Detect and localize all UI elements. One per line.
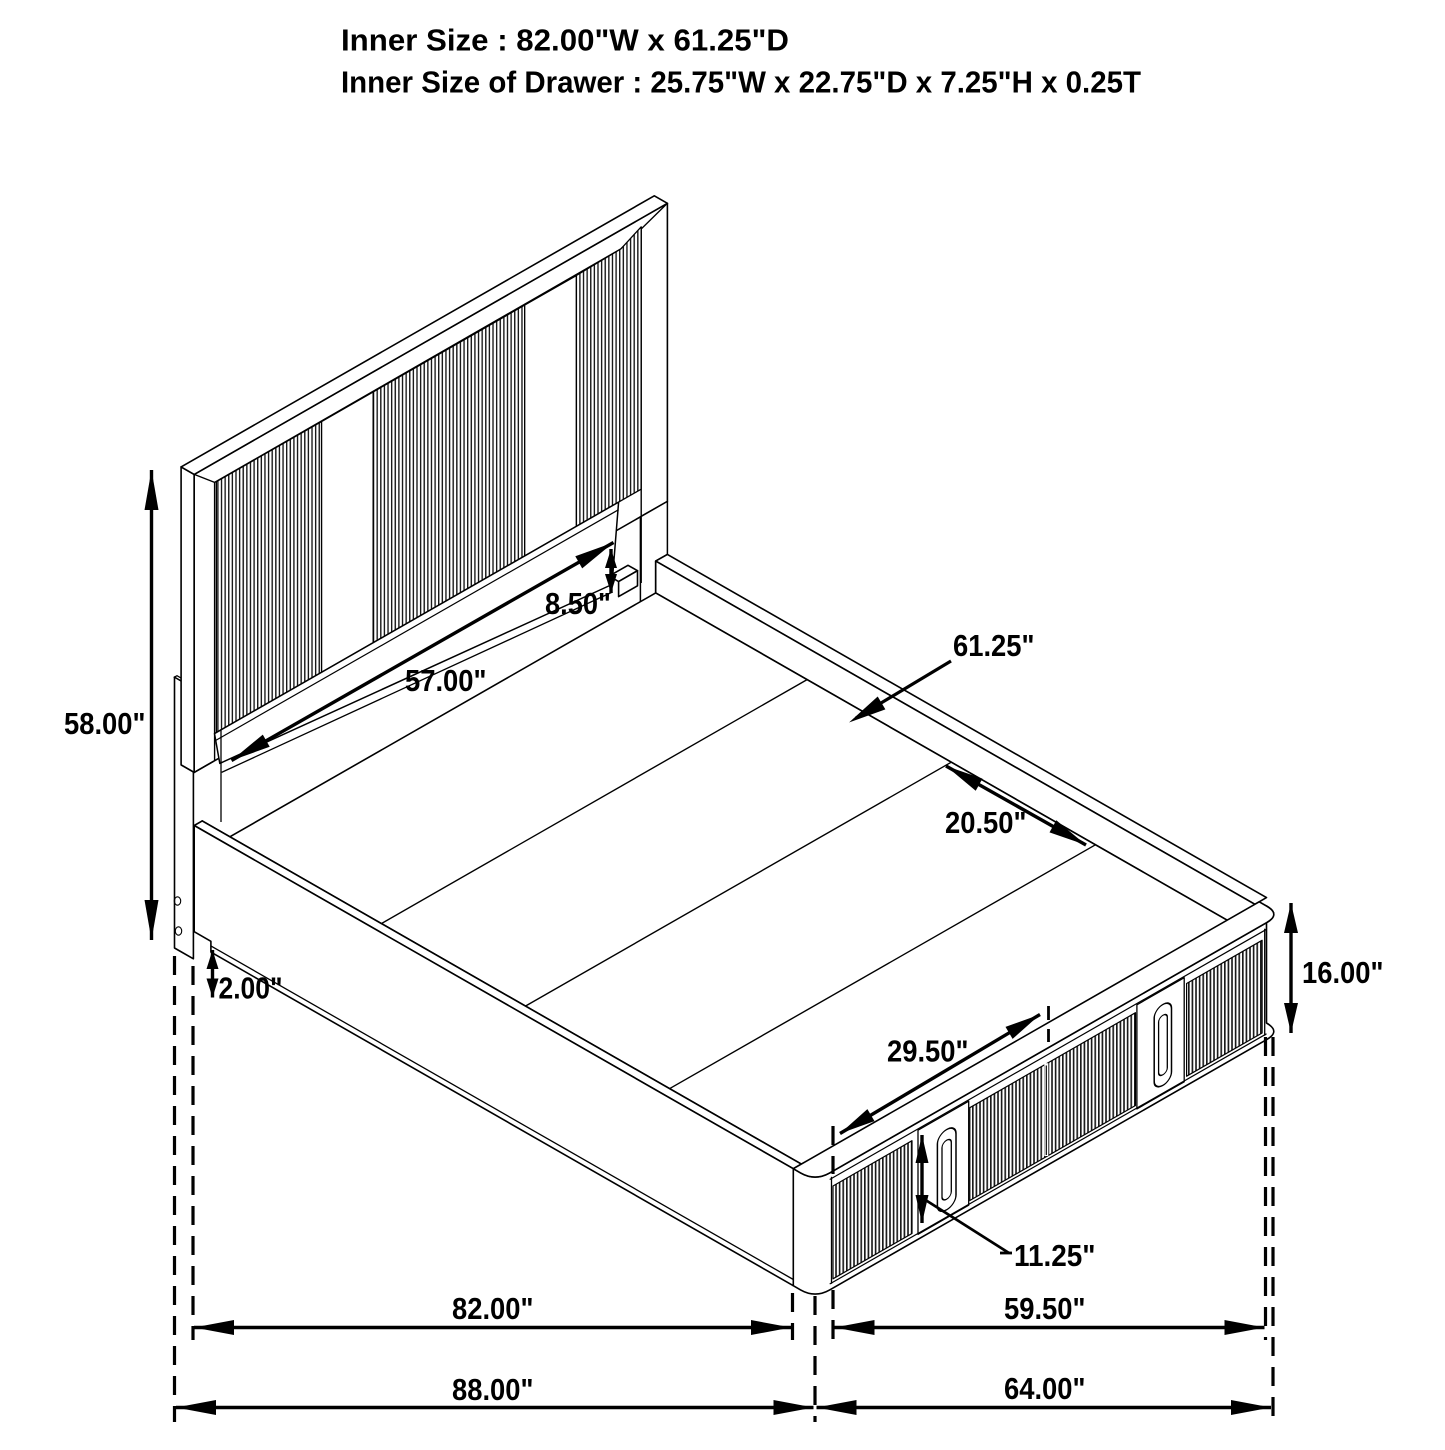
svg-text:Inner Size : 82.00"W x 61.25"D: Inner Size : 82.00"W x 61.25"D (341, 23, 789, 58)
svg-text:61.25": 61.25" (953, 628, 1035, 663)
svg-text:2.00": 2.00" (219, 971, 283, 1006)
svg-text:64.00": 64.00" (1004, 1371, 1086, 1406)
svg-text:11.25": 11.25" (1014, 1238, 1096, 1273)
svg-text:82.00": 82.00" (452, 1291, 534, 1326)
svg-text:57.00": 57.00" (405, 663, 487, 698)
svg-text:29.50": 29.50" (887, 1034, 969, 1069)
svg-text:59.50": 59.50" (1004, 1291, 1086, 1326)
svg-text:8.50": 8.50" (545, 586, 611, 621)
svg-text:Inner Size of Drawer : 25.75"W: Inner Size of Drawer : 25.75"W x 22.75"D… (341, 65, 1141, 100)
svg-text:58.00": 58.00" (64, 706, 146, 741)
svg-text:20.50": 20.50" (945, 805, 1027, 840)
svg-text:88.00": 88.00" (452, 1372, 534, 1407)
svg-text:16.00": 16.00" (1302, 955, 1384, 990)
